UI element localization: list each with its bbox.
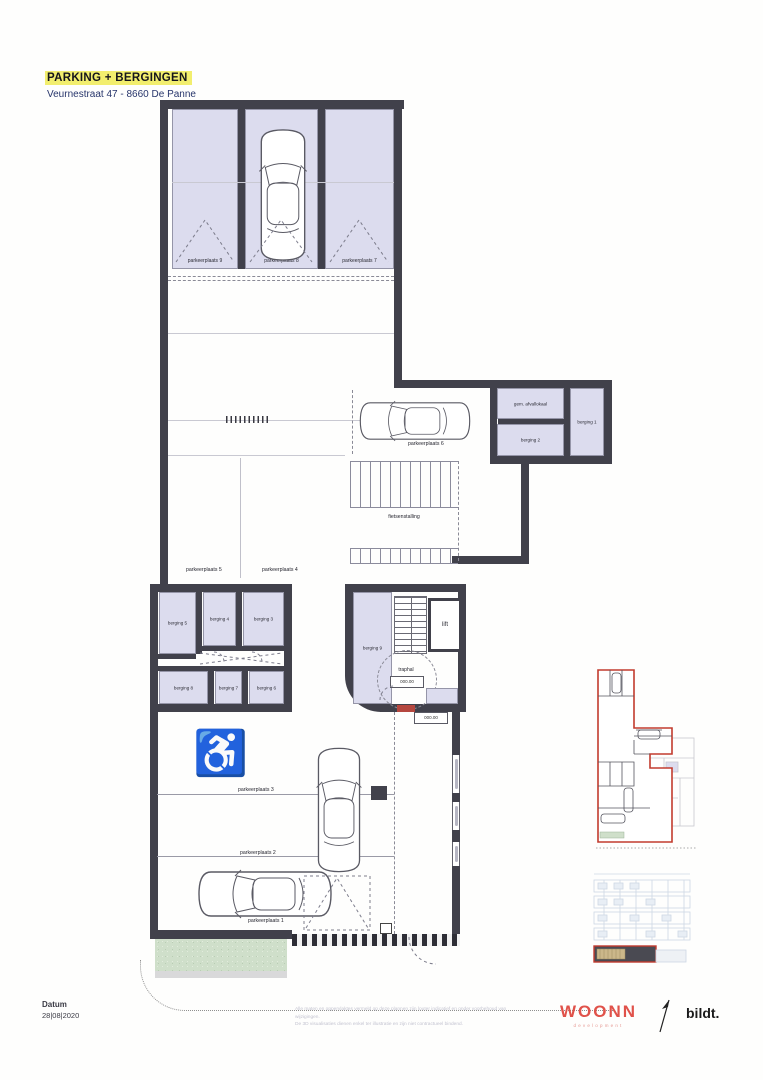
wall — [284, 584, 292, 712]
stair-hall-label: traphal — [377, 667, 435, 673]
room-label: berging 8 — [160, 685, 207, 690]
page-subtitle: Veurnestraat 47 - 8660 De Panne — [45, 89, 196, 100]
storage-room-1: berging 1 — [570, 388, 604, 456]
parking-space-7: parkeerplaats 7 — [325, 109, 394, 269]
wall — [497, 456, 612, 464]
wheelchair-icon: ♿ — [193, 732, 248, 776]
wall — [236, 592, 242, 646]
wall — [490, 388, 497, 464]
elevator-label: lift — [431, 622, 459, 628]
room-label: berging 1 — [571, 420, 603, 425]
dashed-line — [394, 712, 395, 934]
wall — [452, 556, 529, 564]
storage-room-5: berging 5 — [159, 592, 196, 654]
room-label: berging 7 — [216, 685, 241, 690]
bildt-logo: bildt. — [686, 1005, 719, 1021]
storage-room-3: berging 3 — [243, 592, 284, 646]
column — [371, 786, 387, 800]
entrance-gate-strip — [292, 934, 460, 946]
vertical-annotation-text — [455, 759, 458, 789]
guide-line — [168, 333, 394, 334]
space-divider-line — [240, 458, 241, 578]
wall — [604, 380, 612, 464]
key-plan — [588, 666, 700, 858]
dashed-line — [168, 280, 394, 281]
wall — [150, 584, 158, 939]
bike-racks — [350, 548, 458, 564]
car-top-view — [357, 392, 473, 450]
car-top-view — [252, 126, 314, 264]
parking-space-label: parkeerplaats 2 — [240, 850, 276, 856]
entrance-mat — [426, 688, 458, 704]
page-title: PARKING + BERGINGEN — [45, 71, 192, 85]
wall — [152, 584, 292, 592]
drawing-header: PARKING + BERGINGEN Veurnestraat 47 - 86… — [45, 68, 196, 100]
room-label: berging 5 — [160, 621, 195, 626]
room-label: berging 4 — [204, 617, 235, 622]
wall — [402, 380, 612, 388]
parking-space-label: parkeerplaats 4 — [262, 567, 298, 573]
room-label: berging 6 — [250, 685, 283, 690]
storage-room-8: berging 8 — [159, 671, 208, 704]
wall — [158, 654, 196, 659]
parking-space-label: parkeerplaats 9 — [173, 258, 237, 264]
wall — [152, 704, 292, 712]
room-label: berging 9 — [354, 646, 391, 651]
vertical-annotation-text — [455, 846, 458, 862]
wall — [196, 592, 202, 654]
woonn-wordmark: WOONN — [560, 1002, 637, 1022]
parking-space-label: parkeerplaats 7 — [326, 258, 393, 264]
wall — [150, 930, 292, 939]
room-label: gem. afvallokaal — [498, 401, 563, 406]
parking-space-9: parkeerplaats 9 — [172, 109, 238, 269]
disclaimer-line: Alle maten en oppervlaktes vermeld op de… — [295, 1006, 515, 1021]
parking-space-label: parkeerplaats 5 — [186, 567, 222, 573]
wall — [208, 671, 214, 704]
woonn-subtext: development — [560, 1023, 637, 1028]
column — [380, 923, 392, 934]
storage-room-6: berging 6 — [249, 671, 284, 704]
date-label: Datum — [42, 1000, 79, 1009]
wall — [318, 109, 325, 269]
elevator: lift — [428, 598, 462, 652]
dashed-line — [458, 461, 459, 561]
disclaimer: Alle maten en oppervlaktes vermeld op de… — [295, 1006, 515, 1029]
room-label: berging 3 — [244, 617, 283, 622]
date-block: Datum 28|08|2020 — [42, 1000, 79, 1020]
car-top-view — [160, 864, 370, 924]
wall — [521, 464, 529, 560]
bike-storage-label: fietsenstalling — [350, 514, 458, 520]
key-elevation — [590, 866, 694, 966]
north-arrow-icon — [652, 994, 676, 1036]
dashed-line — [168, 276, 394, 277]
level-marker: 000.00 — [414, 712, 448, 724]
property-boundary — [140, 960, 613, 1011]
car-top-view — [311, 744, 367, 876]
wall — [394, 100, 402, 388]
wall — [202, 646, 284, 651]
parking-space-label: parkeerplaats 3 — [238, 787, 274, 793]
wall — [345, 584, 466, 592]
entrance-threshold — [397, 705, 415, 712]
dashed-line — [352, 390, 353, 454]
guide-line — [168, 455, 345, 456]
wall — [164, 100, 404, 109]
room-label: berging 2 — [498, 438, 563, 443]
wall — [242, 671, 248, 704]
staircase — [394, 596, 427, 654]
wall — [238, 109, 245, 269]
date-value: 28|08|2020 — [42, 1011, 79, 1020]
level-marker: 000.00 — [390, 676, 424, 688]
storage-room-4: berging 4 — [203, 592, 236, 646]
vertical-annotation-text — [455, 806, 458, 826]
dimension-ticks — [226, 416, 270, 423]
disclaimer-line: De 3D visualisaties dienen enkel ter ill… — [295, 1021, 515, 1029]
waste-room: gem. afvallokaal — [497, 388, 564, 419]
woonn-logo: WOONN development — [560, 1002, 637, 1028]
wall — [160, 100, 168, 584]
storage-room-2: berging 2 — [497, 424, 564, 456]
bike-racks — [350, 461, 458, 508]
storage-room-7: berging 7 — [215, 671, 242, 704]
stair-rail — [411, 597, 412, 653]
scanned-floorplan-page: PARKING + BERGINGEN Veurnestraat 47 - 86… — [0, 0, 763, 1080]
